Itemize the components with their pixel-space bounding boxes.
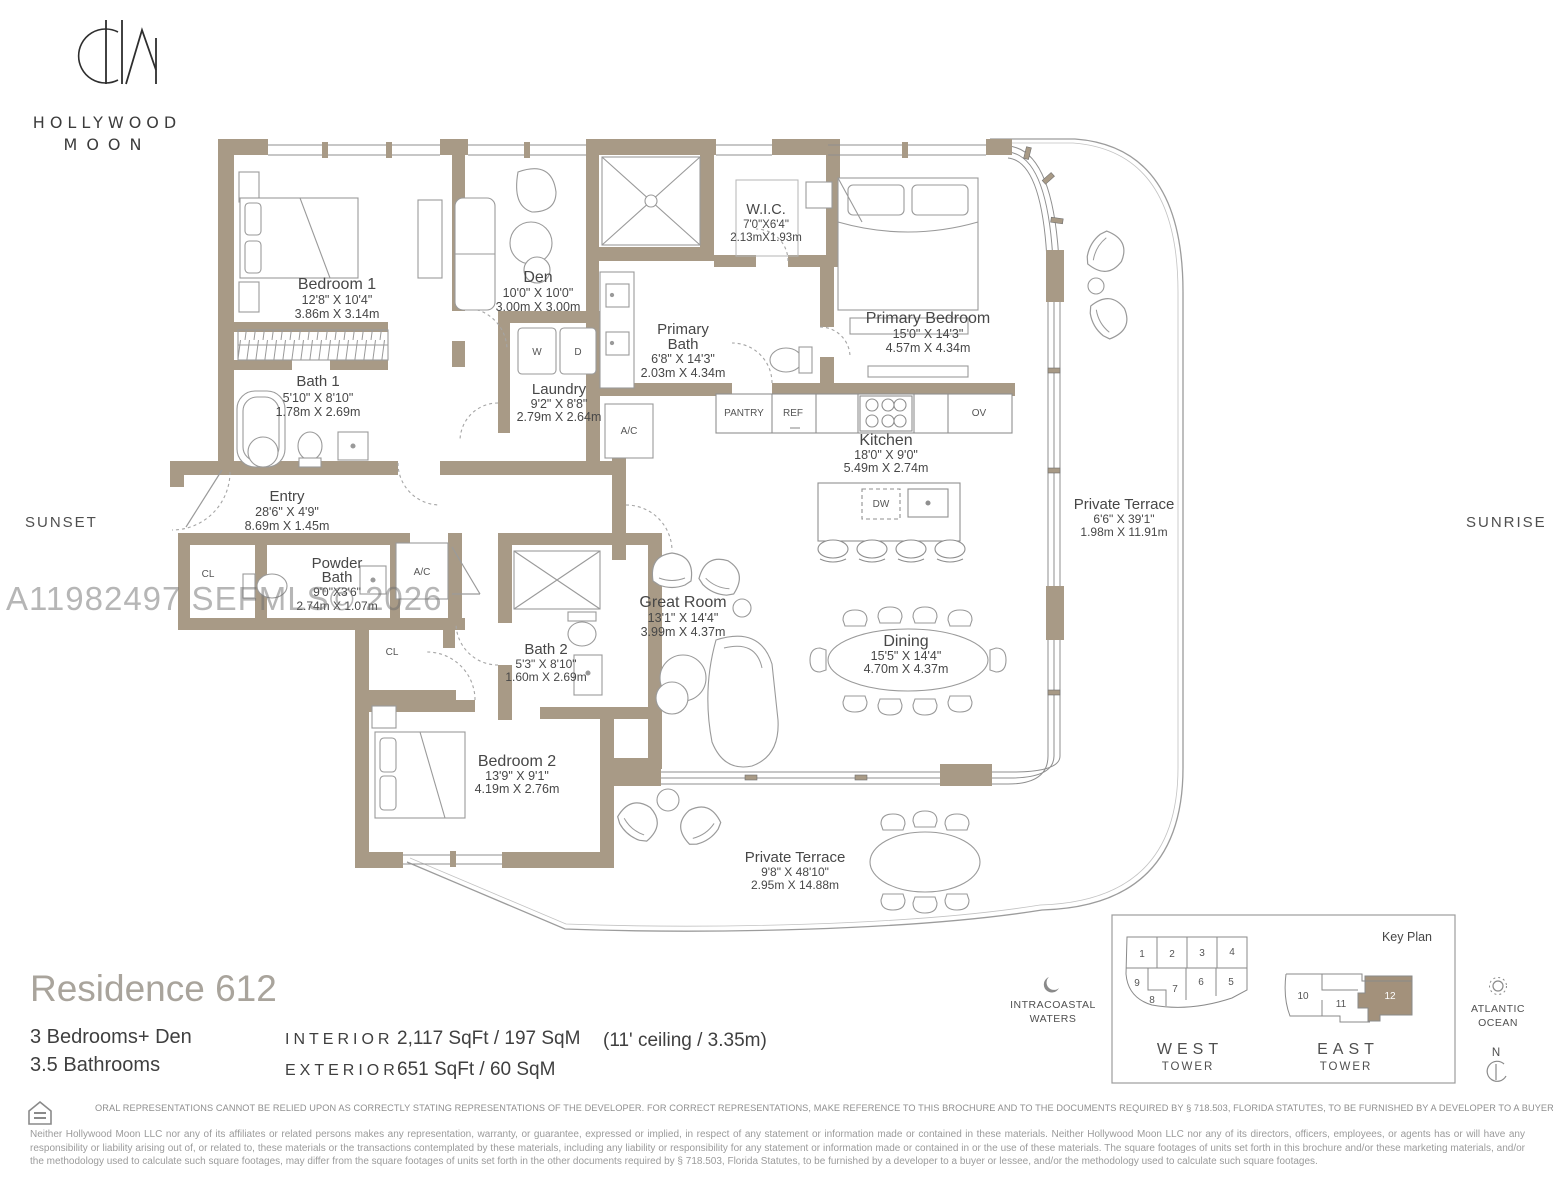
room-label-bath2: Bath 2 5'3" X 8'10" 1.60m X 2.69m: [505, 641, 586, 684]
intracoastal-label: INTRACOASTAL: [1010, 999, 1096, 1011]
disclaimer-headline: ORAL REPRESENTATIONS CANNOT BE RELIED UP…: [95, 1103, 1545, 1113]
svg-text:4.19m X 2.76m: 4.19m X 2.76m: [475, 782, 560, 796]
svg-text:6'8" X 14'3": 6'8" X 14'3": [651, 352, 715, 366]
west-tower-label: WEST: [1157, 1041, 1223, 1058]
ac-label-2: A/C: [414, 567, 431, 578]
svg-text:Bath: Bath: [668, 336, 699, 353]
svg-text:7'0"X6'4": 7'0"X6'4": [743, 219, 789, 231]
svg-text:15'5" X 14'4": 15'5" X 14'4": [871, 649, 942, 663]
east-tower-label: EAST: [1317, 1041, 1379, 1058]
sunrise-label: SUNRISE: [1466, 514, 1547, 531]
svg-text:5'10" X 8'10": 5'10" X 8'10": [283, 391, 354, 405]
room-label-bath1: Bath 1 5'10" X 8'10" 1.78m X 2.69m: [276, 373, 361, 419]
sunset-label: SUNSET: [25, 514, 98, 531]
svg-text:Dining: Dining: [883, 633, 928, 650]
svg-text:W.I.C.: W.I.C.: [746, 202, 785, 218]
svg-text:8: 8: [1149, 995, 1155, 1006]
svg-text:3: 3: [1199, 948, 1205, 959]
svg-text:3.99m X 4.37m: 3.99m X 4.37m: [641, 625, 726, 639]
svg-text:12: 12: [1384, 991, 1396, 1002]
svg-text:Great Room: Great Room: [639, 594, 726, 611]
svg-text:5: 5: [1228, 977, 1234, 988]
waters-label: WATERS: [1030, 1013, 1077, 1025]
exterior-value: 651 SqFt / 60 SqM: [397, 1059, 555, 1081]
wic-shelving: [736, 180, 798, 256]
svg-text:Bath 1: Bath 1: [296, 373, 339, 390]
svg-text:Bath 2: Bath 2: [524, 641, 567, 658]
svg-text:Private Terrace: Private Terrace: [1074, 496, 1175, 513]
svg-text:6'6" X 39'1": 6'6" X 39'1": [1093, 512, 1154, 526]
svg-text:1.78m X 2.69m: 1.78m X 2.69m: [276, 405, 361, 419]
moon-icon: [1044, 977, 1059, 992]
svg-text:Bedroom 2: Bedroom 2: [478, 753, 556, 770]
svg-text:8.69m X 1.45m: 8.69m X 1.45m: [245, 519, 330, 533]
room-label-wic: W.I.C. 7'0"X6'4" 2.13mX1.93m: [730, 202, 802, 244]
svg-text:7: 7: [1172, 984, 1178, 995]
exterior-label: EXTERIOR: [285, 1062, 397, 1080]
dryer-label: D: [574, 347, 581, 358]
svg-text:13'9" X 9'1": 13'9" X 9'1": [485, 769, 549, 783]
room-label-private-terrace-south: Private Terrace 9'8" X 48'10" 2.95m X 14…: [745, 849, 846, 892]
room-label-great-room: Great Room 13'1" X 14'4" 3.99m X 4.37m: [639, 594, 726, 639]
svg-text:3.86m X 3.14m: 3.86m X 3.14m: [295, 307, 380, 321]
area-figures: INTERIOR 2,117 SqFt / 197 SqM EXTERIOR 6…: [285, 1028, 580, 1090]
bedroom2-furniture: [372, 706, 465, 818]
svg-text:2.95m X 14.88m: 2.95m X 14.88m: [751, 878, 839, 892]
svg-text:18'0" X 9'0": 18'0" X 9'0": [854, 448, 918, 462]
svg-text:2: 2: [1169, 949, 1175, 960]
atlantic-label: ATLANTIC: [1471, 1003, 1525, 1015]
ceiling-note: (11' ceiling / 3.35m): [603, 1030, 767, 1052]
room-label-private-terrace-east: Private Terrace 6'6" X 39'1" 1.98m X 11.…: [1074, 496, 1175, 539]
svg-text:2.03m X 4.34m: 2.03m X 4.34m: [641, 366, 726, 380]
svg-text:1.98m X 11.91m: 1.98m X 11.91m: [1080, 525, 1167, 539]
svg-text:28'6" X 4'9": 28'6" X 4'9": [255, 505, 319, 519]
svg-text:10: 10: [1297, 991, 1309, 1002]
room-label-den: Den 10'0" X 10'0" 3.00m X 3.00m: [496, 269, 581, 314]
svg-text:4: 4: [1229, 947, 1235, 958]
bathrooms-line: 3.5 Bathrooms: [30, 1052, 192, 1080]
svg-text:Primary Bedroom: Primary Bedroom: [866, 310, 990, 327]
svg-text:Private Terrace: Private Terrace: [745, 849, 846, 866]
kitchen-island: [818, 483, 965, 562]
bedrooms-line: 3 Bedrooms+ Den: [30, 1024, 192, 1052]
svg-text:1.60m X 2.69m: 1.60m X 2.69m: [505, 670, 586, 684]
svg-text:13'1" X 14'4": 13'1" X 14'4": [648, 611, 719, 625]
room-label-entry: Entry 28'6" X 4'9" 8.69m X 1.45m: [245, 488, 330, 533]
svg-text:10'0" X 10'0": 10'0" X 10'0": [503, 286, 574, 300]
key-plan-title: Key Plan: [1382, 930, 1432, 944]
washer-label: W: [532, 347, 542, 358]
svg-text:6: 6: [1198, 977, 1204, 988]
residence-specs: 3 Bedrooms+ Den 3.5 Bathrooms: [30, 1024, 192, 1079]
svg-text:1: 1: [1139, 949, 1145, 960]
svg-text:Entry: Entry: [269, 488, 305, 505]
compass-icon: [1487, 1061, 1506, 1081]
svg-text:4.70m X 4.37m: 4.70m X 4.37m: [864, 662, 949, 676]
key-plan: Key Plan 1 2 3 4 9 7 6 5 8: [1112, 915, 1455, 1083]
svg-text:3.00m X 3.00m: 3.00m X 3.00m: [496, 300, 581, 314]
east-tower-sublabel: TOWER: [1320, 1061, 1373, 1073]
svg-text:11: 11: [1336, 999, 1347, 1010]
svg-text:5.49m X 2.74m: 5.49m X 2.74m: [844, 461, 929, 475]
svg-text:9'8" X 48'10": 9'8" X 48'10": [761, 865, 829, 879]
svg-text:12'8" X 10'4": 12'8" X 10'4": [302, 293, 373, 307]
bedroom1-furniture: [238, 172, 442, 360]
ac-label-1: A/C: [621, 426, 638, 437]
svg-text:15'0" X 14'3": 15'0" X 14'3": [893, 327, 964, 341]
svg-text:2.13mX1.93m: 2.13mX1.93m: [730, 232, 802, 244]
room-label-kitchen: Kitchen 18'0" X 9'0" 5.49m X 2.74m: [844, 432, 929, 475]
floorplan-page: HOLLYWOOD MOON: [0, 0, 1553, 1200]
mls-watermark: A11982497 SEFMLS© 2026: [6, 580, 442, 618]
svg-text:4.57m X 4.34m: 4.57m X 4.34m: [886, 341, 971, 355]
equal-housing-logo-icon: [27, 1100, 53, 1128]
disclaimer-body: Neither Hollywood Moon LLC nor any of it…: [30, 1128, 1525, 1169]
closet-label-2: CL: [386, 647, 399, 658]
room-label-bedroom2: Bedroom 2 13'9" X 9'1" 4.19m X 2.76m: [475, 753, 560, 796]
pantry-label: PANTRY: [724, 408, 764, 419]
interior-label: INTERIOR: [285, 1031, 397, 1049]
dishwasher-label: DW: [873, 499, 890, 510]
interior-value: 2,117 SqFt / 197 SqM: [397, 1028, 580, 1050]
svg-text:Bedroom 1: Bedroom 1: [298, 276, 376, 293]
fridge-label: REF: [783, 408, 803, 419]
closet-label-1: CL: [202, 569, 215, 580]
north-label: N: [1492, 1047, 1500, 1059]
svg-text:5'3" X 8'10": 5'3" X 8'10": [515, 657, 576, 671]
svg-text:Kitchen: Kitchen: [859, 432, 912, 449]
room-label-primary-bath: Primary Bath 6'8" X 14'3" 2.03m X 4.34m: [641, 321, 726, 380]
svg-text:Den: Den: [523, 269, 552, 286]
east-terrace-furniture: [1082, 227, 1134, 342]
sun-icon: [1490, 978, 1507, 995]
svg-text:9'2" X 8'8": 9'2" X 8'8": [531, 397, 588, 411]
west-tower-sublabel: TOWER: [1162, 1061, 1215, 1073]
room-label-bedroom1: Bedroom 1 12'8" X 10'4" 3.86m X 3.14m: [295, 276, 380, 321]
oven-label: OV: [972, 408, 987, 419]
svg-text:2.79m X 2.64m: 2.79m X 2.64m: [517, 410, 602, 424]
great-room-furniture: [652, 553, 778, 767]
svg-text:9: 9: [1134, 978, 1140, 989]
residence-title: Residence 612: [30, 968, 277, 1010]
svg-text:Laundry: Laundry: [532, 381, 587, 398]
primary-shower: [602, 157, 700, 245]
ocean-label: OCEAN: [1478, 1017, 1518, 1029]
